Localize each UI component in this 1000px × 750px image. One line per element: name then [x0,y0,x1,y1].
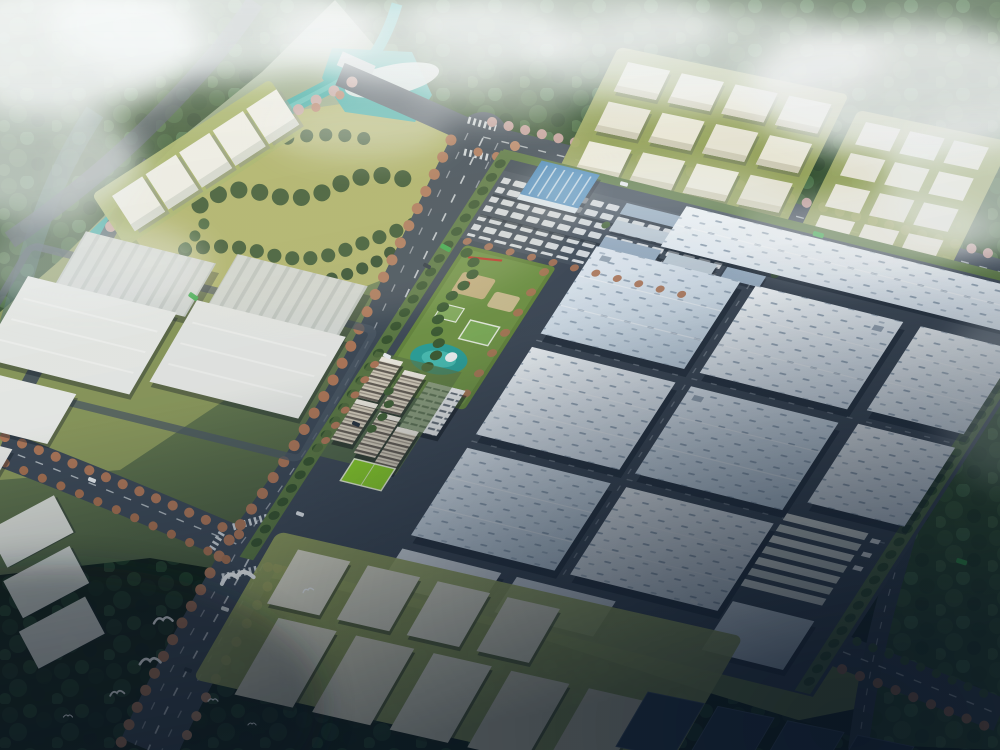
aerial-render [0,0,1000,750]
render-canvas [0,0,1000,750]
